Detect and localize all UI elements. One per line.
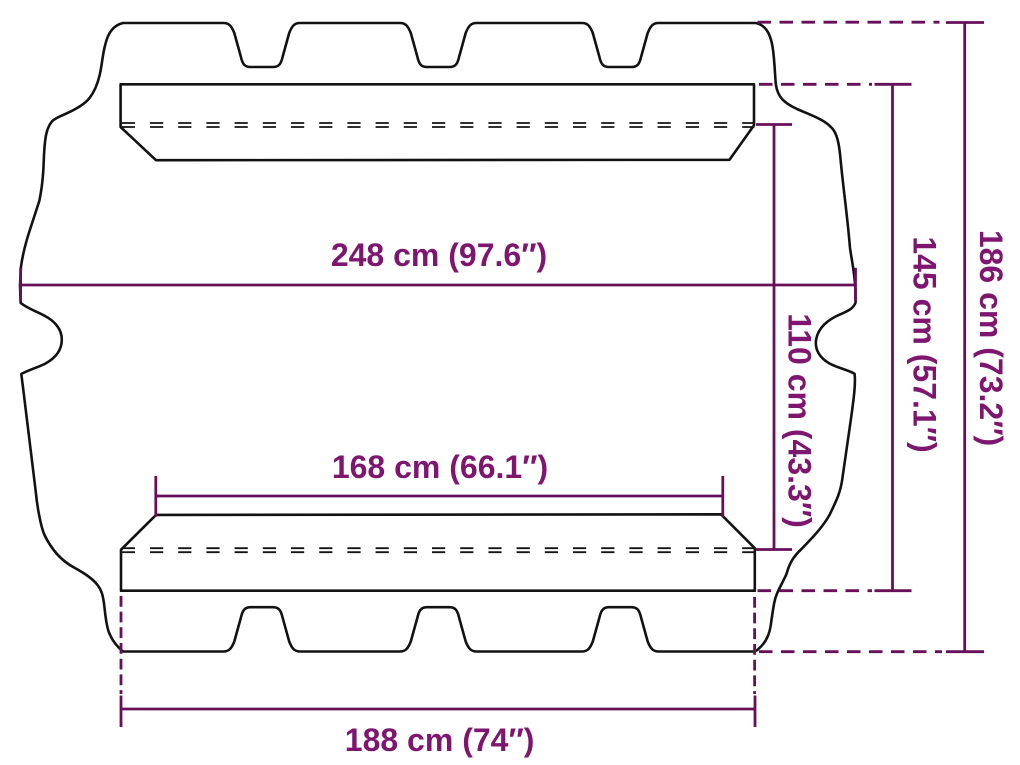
- svg-text:248 cm (97.6″): 248 cm (97.6″): [331, 237, 547, 273]
- svg-text:110 cm (43.3″): 110 cm (43.3″): [782, 313, 818, 528]
- svg-text:188 cm (74″): 188 cm (74″): [345, 722, 535, 758]
- svg-text:145 cm (57.1″): 145 cm (57.1″): [907, 236, 943, 452]
- svg-text:186 cm (73.2″): 186 cm (73.2″): [973, 230, 1009, 446]
- svg-text:168 cm (66.1″): 168 cm (66.1″): [332, 449, 548, 485]
